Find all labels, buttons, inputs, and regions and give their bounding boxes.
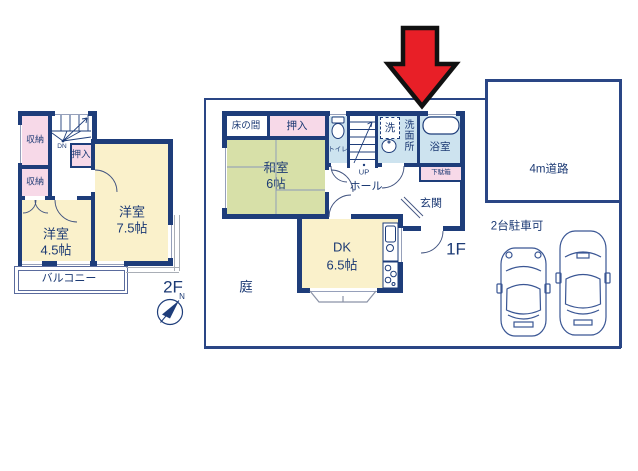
room-label-closet-bottom-2f: 収納 (26, 178, 44, 187)
window (330, 111, 346, 116)
wall (375, 111, 378, 168)
wall (222, 214, 403, 219)
room-label-dk-size: 6.5帖 (326, 259, 357, 272)
shoe-cabinet-label: 下駄箱 (431, 170, 451, 177)
floor1-label: 1F (446, 241, 466, 258)
compass-icon (158, 300, 183, 325)
balcony-label: バルコニー (42, 274, 97, 285)
window (222, 148, 227, 208)
room-label-toilet: トイレ (328, 147, 348, 154)
eave-line (174, 215, 180, 271)
room-label-washitsu-name: 和室 (263, 162, 288, 175)
room-label-hall: ホール (350, 182, 383, 193)
window (310, 288, 377, 293)
door-opening (421, 226, 443, 231)
room-toilet (329, 116, 347, 163)
room-label-tokonoma: 床の間 (232, 121, 261, 131)
car-icon (497, 248, 550, 336)
room-label-west-4-5-size: 4.5帖 (40, 244, 71, 257)
room-label-bathroom: 浴室 (430, 142, 451, 153)
room-label-oshiire-2f: 押入 (71, 150, 90, 160)
lot-boundary-top (204, 98, 487, 100)
door-opening (382, 163, 404, 167)
lot-boundary-bottom (204, 346, 621, 349)
road-boundary-top (485, 79, 621, 82)
wall (227, 136, 329, 140)
road-boundary-left (485, 79, 488, 202)
eave-line (126, 267, 179, 273)
room-west-7-5-2f (95, 143, 168, 261)
room-label-west-4-5-name: 洋室 (43, 228, 69, 241)
room-label-west-7-5-name: 洋室 (119, 206, 145, 219)
door-opening (25, 196, 45, 200)
parking-label: 2台駐車可 (491, 221, 543, 233)
window (398, 228, 403, 262)
wall (267, 116, 270, 138)
room-label-dk-name: DK (333, 241, 351, 254)
wall (48, 111, 52, 200)
lot-boundary-right (619, 79, 622, 348)
annotation-arrow (388, 28, 456, 106)
wall (18, 165, 52, 169)
room-label-washroom: 洗面所 (402, 119, 412, 152)
door-opening (91, 170, 95, 192)
door-opening (55, 196, 77, 200)
door-opening (329, 214, 351, 219)
wall (297, 214, 302, 293)
car-icon (556, 231, 610, 335)
room-label-oshiire-1f: 押入 (287, 121, 308, 132)
room-label-entrance: 玄関 (420, 199, 442, 210)
road-boundary-bottom (485, 200, 621, 203)
window (168, 225, 173, 258)
compass-north-label: N (179, 293, 185, 301)
wall (92, 139, 173, 144)
floor-plan-image: 収納 収納 押入 DN 洋室 7.5帖 洋室 4.5帖 バルコニー 2F N (0, 0, 638, 471)
room-label-closet-top-2f: 収納 (26, 136, 44, 145)
room-label-west-7-5-size: 7.5帖 (116, 222, 147, 235)
road-label: 4m道路 (530, 164, 569, 176)
window (18, 125, 22, 163)
stairs-down-label: DN (57, 144, 66, 151)
window (428, 111, 456, 116)
window (55, 111, 88, 116)
room-label-laundry: 洗 (385, 123, 396, 134)
stairs-up-label: UP (359, 168, 369, 176)
stairs-2f-icon (52, 115, 91, 142)
room-label-washitsu-size: 6帖 (266, 178, 285, 191)
door-opening (331, 163, 347, 167)
wall (417, 111, 420, 167)
garden-label: 庭 (239, 280, 253, 294)
stairs-1f-icon (350, 122, 375, 166)
door-opening (325, 170, 329, 192)
lot-boundary-left (204, 98, 206, 348)
wall (347, 111, 350, 168)
room-bathroom (420, 116, 460, 163)
